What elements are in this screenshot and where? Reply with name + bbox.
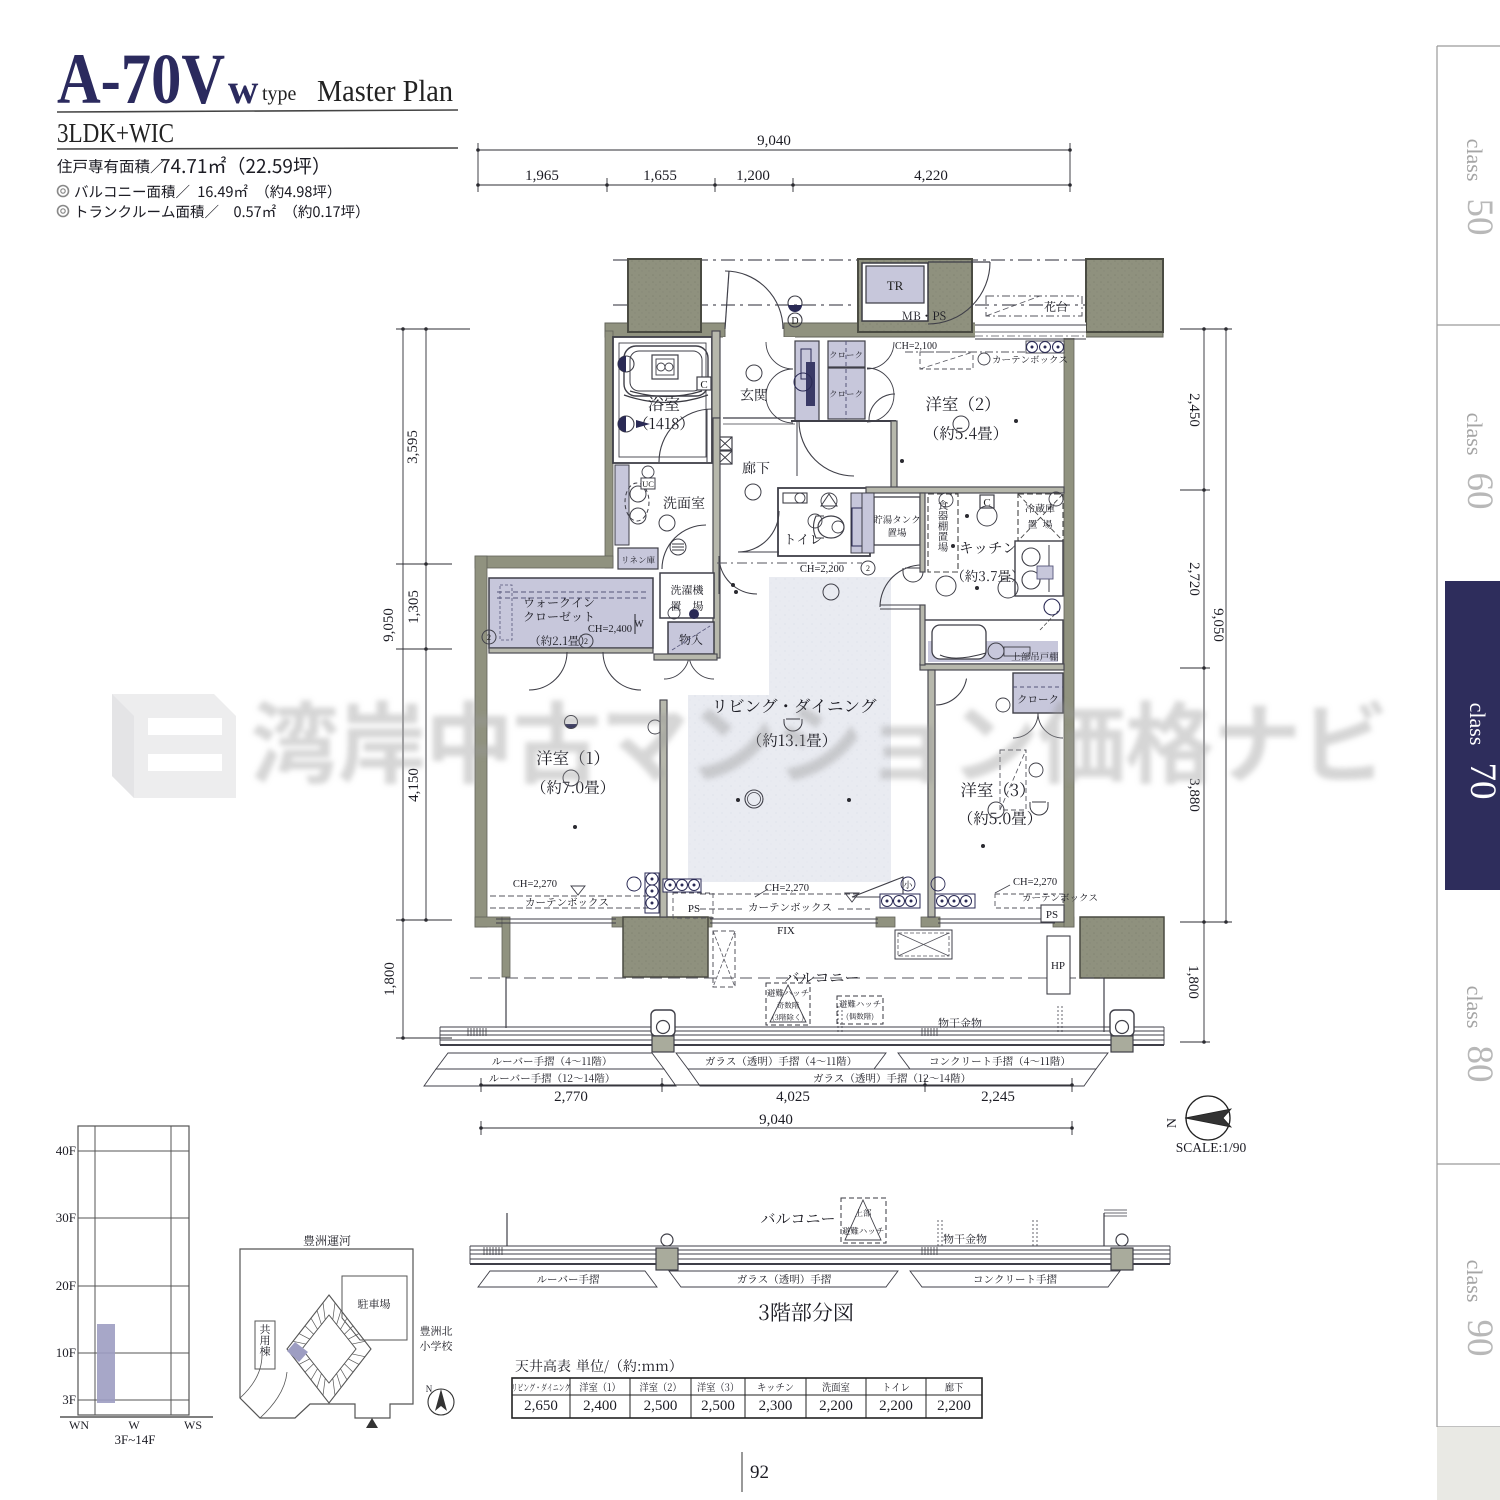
svg-text:70: 70 (1462, 763, 1500, 800)
svg-text:2,450: 2,450 (1186, 393, 1202, 427)
svg-text:N: N (1165, 1118, 1180, 1128)
svg-text:4,025: 4,025 (776, 1089, 810, 1105)
svg-text:w: w (228, 67, 259, 113)
svg-text:CH=2,270: CH=2,270 (765, 883, 809, 894)
svg-text:50: 50 (1459, 199, 1500, 236)
svg-text:class: class (1462, 139, 1487, 182)
svg-text:1,800: 1,800 (382, 962, 398, 996)
svg-text:2,720: 2,720 (1186, 562, 1202, 596)
svg-text:2: 2 (584, 637, 588, 646)
svg-text:D: D (791, 316, 798, 327)
svg-text:80: 80 (1459, 1046, 1500, 1083)
svg-text:60: 60 (1459, 473, 1500, 510)
svg-text:WN: WN (69, 1418, 89, 1432)
svg-text:WS: WS (184, 1418, 202, 1432)
svg-text:PS: PS (1046, 909, 1058, 921)
svg-text:2,500: 2,500 (644, 1398, 678, 1414)
svg-text:N: N (426, 1384, 433, 1394)
svg-text:10F: 10F (56, 1345, 76, 1360)
svg-text:2,245: 2,245 (981, 1089, 1015, 1105)
svg-text:2,300: 2,300 (759, 1398, 793, 1414)
svg-text:2,400: 2,400 (583, 1398, 617, 1414)
svg-text:W: W (128, 1418, 140, 1432)
svg-text:90: 90 (1459, 1320, 1500, 1357)
svg-text:40F: 40F (56, 1143, 76, 1158)
svg-text:type: type (262, 83, 297, 105)
svg-text:CH=2,270: CH=2,270 (513, 879, 557, 890)
svg-text:2: 2 (866, 564, 870, 573)
svg-text:1,655: 1,655 (643, 168, 677, 184)
svg-text:CH=2,200: CH=2,200 (800, 564, 844, 575)
svg-text:92: 92 (750, 1462, 769, 1483)
svg-text:CH=2,270: CH=2,270 (1013, 877, 1057, 888)
svg-text:class: class (1462, 986, 1487, 1029)
svg-text:C: C (983, 497, 990, 509)
svg-text:SCALE:1/90: SCALE:1/90 (1176, 1140, 1247, 1155)
svg-text:3LDK+WIC: 3LDK+WIC (57, 118, 174, 148)
svg-text:class: class (1462, 1260, 1487, 1303)
svg-text:3F: 3F (62, 1392, 76, 1407)
svg-text:3,595: 3,595 (405, 430, 421, 464)
svg-text:TR: TR (887, 278, 904, 293)
svg-text:HP: HP (1051, 960, 1065, 972)
svg-text:2,200: 2,200 (819, 1398, 853, 1414)
svg-text:1,965: 1,965 (525, 168, 559, 184)
svg-text:2,650: 2,650 (524, 1398, 558, 1414)
svg-text:PS: PS (688, 903, 700, 915)
svg-text:Master Plan: Master Plan (317, 73, 453, 108)
svg-text:class: class (1462, 413, 1487, 456)
svg-text:30F: 30F (56, 1210, 76, 1225)
svg-text:UC: UC (642, 479, 654, 489)
svg-text:9,040: 9,040 (757, 133, 791, 149)
svg-text:4,220: 4,220 (914, 168, 948, 184)
svg-text:2: 2 (487, 633, 491, 642)
svg-text:FIX: FIX (777, 925, 795, 937)
svg-text:2,200: 2,200 (937, 1398, 971, 1414)
svg-text:9,040: 9,040 (759, 1112, 793, 1128)
svg-text:9,050: 9,050 (1210, 608, 1226, 642)
svg-text:9,050: 9,050 (381, 608, 397, 642)
svg-text:20F: 20F (56, 1278, 76, 1293)
svg-text:2,500: 2,500 (701, 1398, 735, 1414)
svg-text:1,200: 1,200 (736, 168, 770, 184)
svg-text:2,770: 2,770 (554, 1089, 588, 1105)
svg-text:CH=2,400: CH=2,400 (588, 624, 632, 635)
svg-text:2,200: 2,200 (879, 1398, 913, 1414)
svg-text:C: C (700, 379, 707, 391)
svg-text:A-70V: A-70V (57, 39, 225, 119)
svg-text:3F~14F: 3F~14F (115, 1432, 156, 1447)
svg-text:class: class (1465, 703, 1490, 746)
svg-text:1,305: 1,305 (406, 590, 422, 624)
svg-text:1,800: 1,800 (1185, 965, 1201, 999)
svg-text:4,150: 4,150 (406, 768, 422, 802)
svg-text:CH=2,100: CH=2,100 (895, 341, 937, 352)
svg-text:W: W (634, 619, 644, 630)
